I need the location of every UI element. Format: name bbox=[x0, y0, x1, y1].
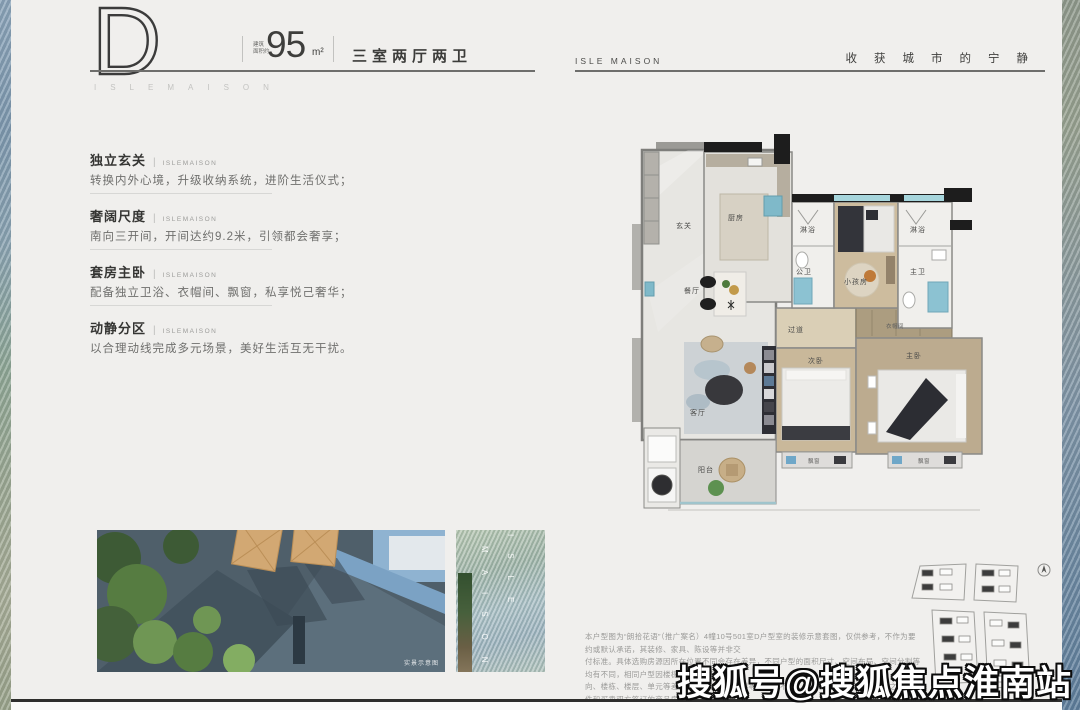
floorplan-drawing: 玄关 厨房 餐厅 客厅 阳台 过道 淋浴 公卫 小孩房 淋浴 主卫 次卧 主卧 … bbox=[628, 132, 990, 518]
room-label-kitchen: 厨房 bbox=[728, 213, 744, 222]
exterior-wall bbox=[632, 224, 641, 290]
wall-black bbox=[950, 220, 972, 230]
feature-divider bbox=[90, 305, 272, 306]
slogan: 收获城市的宁静 bbox=[846, 50, 1046, 66]
room-label-master-bedroom: 主卧 bbox=[906, 351, 922, 360]
feature-2-title: 奢阔尺度|ISLEMAISON bbox=[90, 206, 217, 225]
compass-icon bbox=[1038, 564, 1050, 576]
umbrella-icon bbox=[232, 530, 283, 571]
room-label-bath-public: 公卫 bbox=[796, 268, 812, 276]
brand-spaced: ISLEMAISON bbox=[94, 83, 283, 92]
room-label-shower-left: 淋浴 bbox=[800, 225, 816, 234]
header-rule-left bbox=[90, 70, 535, 72]
strip-inner-photo bbox=[458, 573, 472, 672]
dining-table bbox=[714, 272, 746, 316]
poster-page: D 建筑 面积约 95 m² 三室两厅两卫 ISLEMAISON ISLE MA… bbox=[0, 0, 1080, 710]
header-rule-right bbox=[575, 70, 1045, 72]
umbrella-icon bbox=[291, 530, 339, 566]
glass-texture-strip: MAISON ISLE bbox=[456, 530, 545, 672]
feature-4-desc: 以合理动线完成多元场景，美好生活互无干扰。 bbox=[90, 340, 353, 356]
header-divider-2 bbox=[333, 36, 334, 62]
header-divider-1 bbox=[242, 36, 243, 62]
room-label-bath-master: 主卫 bbox=[910, 267, 926, 276]
wall-black bbox=[704, 142, 762, 152]
feature-divider bbox=[90, 249, 272, 250]
room-label-shower-right: 淋浴 bbox=[910, 225, 926, 234]
strip-vertical-text-isle: ISLE bbox=[506, 534, 515, 619]
room-label-kids: 小孩房 bbox=[844, 277, 868, 286]
room-label-bay-left: 飘窗 bbox=[808, 457, 820, 465]
room-label-dining: 餐厅 bbox=[684, 286, 700, 295]
room-label-bay-right: 飘窗 bbox=[918, 457, 930, 465]
room-label-balcony: 阳台 bbox=[698, 465, 714, 474]
feature-1-title: 独立玄关|ISLEMAISON bbox=[90, 150, 217, 169]
room-label-cloakroom: 衣帽间 bbox=[886, 322, 904, 330]
feature-3-desc: 配备独立卫浴、衣帽间、飘窗，私享悦己奢华； bbox=[90, 284, 353, 300]
layout-text: 三室两厅两卫 bbox=[352, 45, 472, 66]
feature-3-title: 套房主卧|ISLEMAISON bbox=[90, 262, 217, 281]
room-label-living: 客厅 bbox=[690, 408, 706, 417]
feature-1-desc: 转换内外心境，升级收纳系统，进阶生活仪式； bbox=[90, 172, 353, 188]
area-value: 95 bbox=[266, 24, 305, 66]
room-label-second-bedroom: 次卧 bbox=[808, 356, 824, 365]
wall-black bbox=[944, 188, 972, 202]
exterior-wall bbox=[632, 338, 641, 422]
wall-black bbox=[774, 134, 790, 164]
watermark-text: 搜狐号@搜狐焦点淮南站 bbox=[677, 655, 1072, 706]
plan-type-letter: D bbox=[92, 0, 161, 90]
disclaimer-line: 本户型图为“朗拾花语”（推广案名）4幢10号501室D户型室的装修示意套图，仅供… bbox=[585, 631, 921, 656]
strip-vertical-text-maison: MAISON bbox=[480, 546, 489, 672]
feature-4-title: 动静分区|ISLEMAISON bbox=[90, 318, 217, 337]
feature-2-desc: 南向三开间，开间达约9.2米，引领都会奢享； bbox=[90, 228, 346, 244]
right-glass-edge bbox=[1062, 0, 1080, 710]
brand-right: ISLE MAISON bbox=[575, 56, 662, 66]
left-glass-edge bbox=[0, 0, 11, 710]
room-label-entry: 玄关 bbox=[676, 221, 692, 230]
feature-divider bbox=[90, 193, 272, 194]
aerial-pool-photo bbox=[97, 530, 445, 672]
area-unit: m² bbox=[312, 47, 324, 58]
room-label-corridor: 过道 bbox=[788, 325, 804, 334]
